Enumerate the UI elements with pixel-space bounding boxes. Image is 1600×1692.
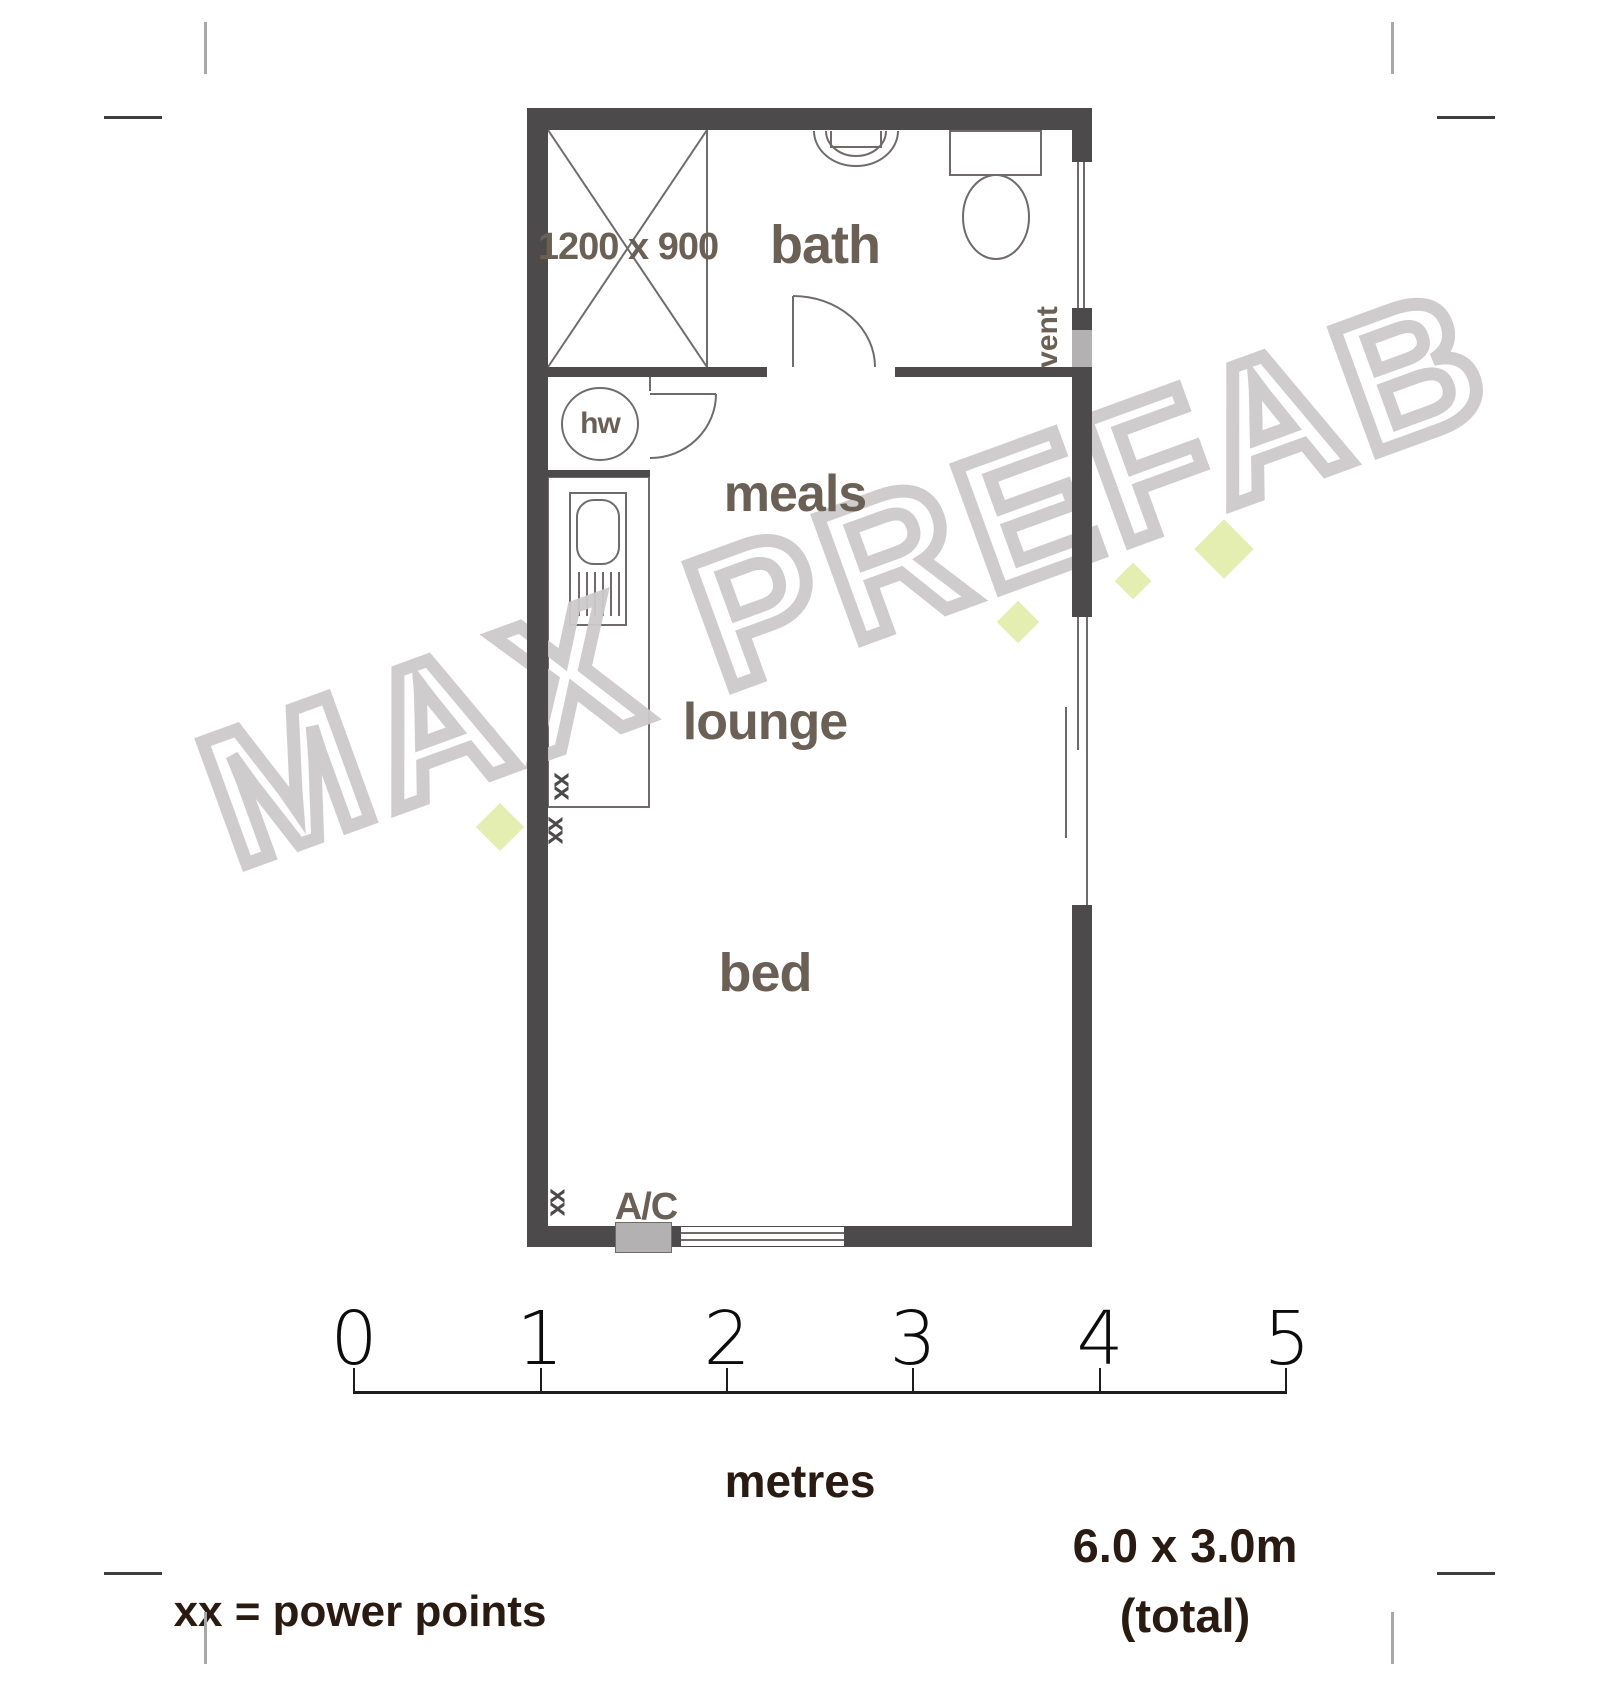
scale-tick [1285, 1368, 1287, 1394]
shower-dimension-label: 1200 x 900 [528, 228, 728, 266]
scale-unit-label: metres [650, 1456, 950, 1507]
scale-number-5: 5 [1242, 1302, 1332, 1376]
floorplan-page: MAX PREFAB 1200 x 900 bath meals lounge … [0, 0, 1600, 1692]
room-label-bed: bed [665, 946, 865, 1000]
wall-left [527, 108, 548, 1247]
bath-window-glazing [1077, 162, 1079, 308]
bottom-window [681, 1227, 844, 1246]
hot-water-label: hw [560, 409, 640, 439]
sliding-window-panel [1065, 707, 1067, 838]
crop-mark [1437, 116, 1495, 119]
sliding-window [1072, 617, 1092, 905]
power-point-mark: xx [550, 772, 577, 798]
crop-mark [204, 22, 207, 74]
sliding-window-track [1086, 617, 1088, 905]
room-label-meals: meals [695, 468, 895, 520]
crop-mark [104, 1572, 162, 1575]
scale-tick [540, 1368, 542, 1394]
crop-mark [1391, 22, 1394, 74]
sliding-window-panel [1077, 617, 1079, 750]
scale-baseline [354, 1391, 1287, 1394]
scale-number-0: 0 [309, 1302, 399, 1376]
wall-hw-closet [548, 470, 650, 477]
total-size-value: 6.0 x 3.0m [1035, 1520, 1335, 1572]
wall-bath-divider-left [548, 367, 767, 377]
total-size-qualifier: (total) [1035, 1590, 1335, 1642]
crop-mark [104, 116, 162, 119]
crop-mark [1391, 1612, 1394, 1664]
scale-number-2: 2 [682, 1302, 772, 1376]
bath-window-glazing [1083, 162, 1085, 308]
vent-block [1072, 330, 1092, 367]
ac-label: A/C [596, 1188, 696, 1226]
crop-mark [1437, 1572, 1495, 1575]
power-point-mark: xx [544, 816, 571, 842]
watermark-text: MAX PREFAB [177, 246, 1520, 906]
wall-top [527, 108, 1092, 130]
power-points-legend: xx = power points [160, 1588, 560, 1636]
crop-mark [204, 1612, 207, 1664]
vent-label: vent [1033, 302, 1063, 372]
scale-number-1: 1 [495, 1302, 585, 1376]
power-point-mark: xx [546, 1188, 573, 1214]
scale-tick [353, 1368, 355, 1394]
scale-number-3: 3 [868, 1302, 958, 1376]
scale-tick [912, 1368, 914, 1394]
bottom-window-glazing [681, 1232, 844, 1234]
room-label-lounge: lounge [665, 696, 865, 748]
scale-number-4: 4 [1055, 1302, 1145, 1376]
room-label-bath: bath [730, 218, 920, 272]
scale-tick [1099, 1368, 1101, 1394]
bath-window [1072, 162, 1092, 308]
scale-tick [726, 1368, 728, 1394]
bottom-window-glazing [681, 1239, 844, 1241]
